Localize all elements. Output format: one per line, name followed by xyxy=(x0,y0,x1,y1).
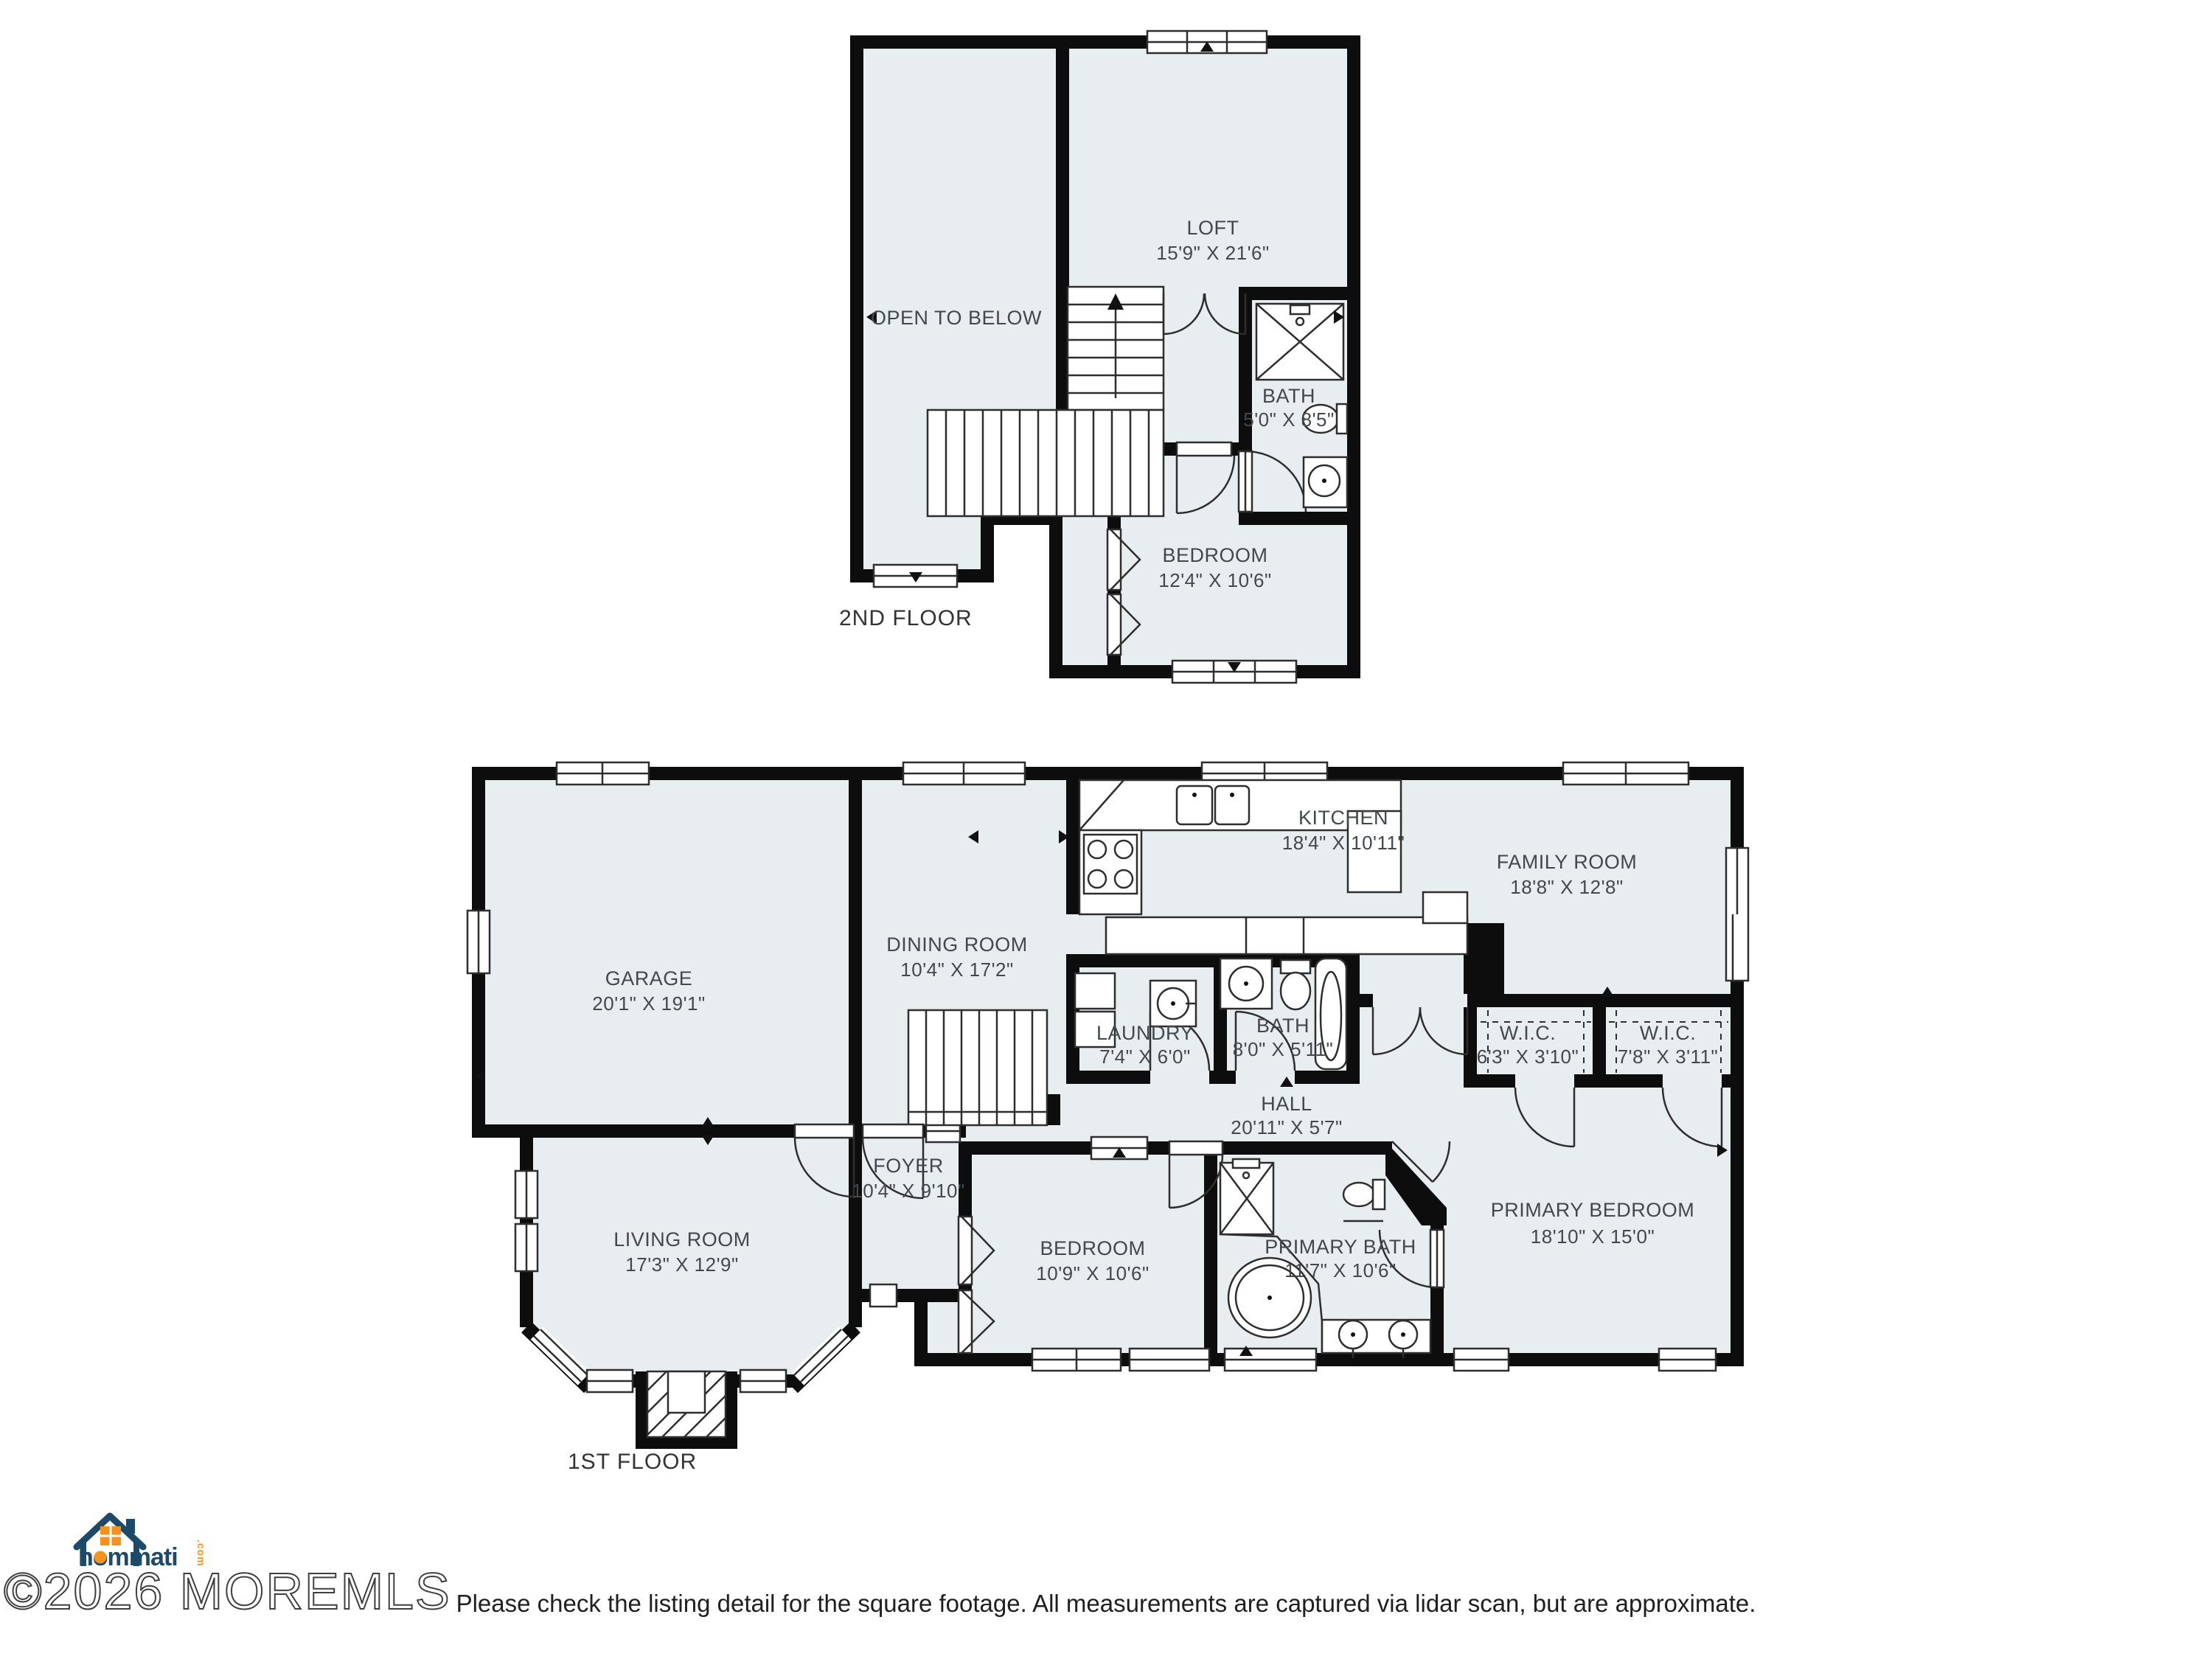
floor-plan-page: OPEN TO BELOW LOFT 15'9" X 21'6" BATH 5'… xyxy=(0,0,2212,1659)
logo-chimney-icon xyxy=(126,1519,135,1534)
room-label-hall: HALL xyxy=(1261,1093,1312,1115)
second-floor-label: 2ND FLOOR xyxy=(839,606,973,630)
room-label-kitchen: KITCHEN xyxy=(1298,807,1388,829)
room-label-primary-bedroom: PRIMARY BEDROOM xyxy=(1491,1199,1695,1221)
first-floor-plan: GARAGE 20'1" X 19'1" DINING ROOM 10'4" X… xyxy=(467,762,1748,1474)
room-dims-laundry: 7'4" X 6'0" xyxy=(1099,1046,1191,1068)
room-dims-family: 18'8" X 12'8" xyxy=(1510,876,1623,898)
garage-window-top xyxy=(557,762,649,785)
bath1-toilet-tank xyxy=(1281,960,1310,973)
room-label-foyer: FOYER xyxy=(873,1155,944,1177)
bath1-toilet xyxy=(1281,973,1310,1009)
room-dims-primary-bath: 11'7" X 10'6" xyxy=(1284,1259,1397,1281)
room-dims-hall: 20'11" X 5'7" xyxy=(1231,1116,1343,1138)
primary-bedroom-window-1 xyxy=(1454,1349,1509,1371)
sink-icon xyxy=(1304,457,1347,507)
room-dims-living: 17'3" X 12'9" xyxy=(625,1253,738,1276)
room-dims-bath2: 5'0" X 8'5" xyxy=(1243,408,1335,431)
second-floor-plan: OPEN TO BELOW LOFT 15'9" X 21'6" BATH 5'… xyxy=(839,31,1360,683)
room-label-open-to-below: OPEN TO BELOW xyxy=(871,307,1042,329)
bedroom1-window-2 xyxy=(1130,1349,1209,1371)
room-dims-wic-right: 7'8" X 3'11" xyxy=(1618,1046,1719,1068)
room-label-bath1: BATH xyxy=(1256,1015,1310,1037)
shower xyxy=(1256,304,1343,380)
room-label-bedroom1: BEDROOM xyxy=(1040,1237,1145,1259)
room-label-laundry: LAUNDRY xyxy=(1096,1022,1194,1044)
living-window-left-1 xyxy=(515,1171,538,1218)
primary-bedroom-window-2 xyxy=(1659,1349,1716,1371)
garage-window-left xyxy=(467,911,490,973)
firebox xyxy=(668,1371,705,1413)
room-label-wic-right: W.I.C. xyxy=(1640,1022,1697,1044)
kitchen-sink xyxy=(1177,786,1212,824)
room-dims-primary-bedroom: 18'10" X 15'0" xyxy=(1531,1225,1655,1248)
room-dims-dining: 10'4" X 17'2" xyxy=(900,959,1013,981)
bedroom1-window-1 xyxy=(1032,1349,1121,1371)
room-label-dining: DINING ROOM xyxy=(886,933,1028,956)
room-label-wic-left: W.I.C. xyxy=(1500,1022,1557,1044)
kitchen-counter-return xyxy=(1423,892,1467,923)
room-label-primary-bath: PRIMARY BATH xyxy=(1265,1236,1416,1258)
room-label-garage: GARAGE xyxy=(605,967,693,990)
room-dims-bedroom1: 10'9" X 10'6" xyxy=(1036,1262,1149,1284)
room-dims-foyer: 10'4" X 9'10" xyxy=(852,1180,964,1202)
foyer-niche xyxy=(870,1284,897,1307)
staircase-1f xyxy=(908,1010,1047,1125)
family-window-top xyxy=(1563,762,1688,785)
room-label-family: FAMILY ROOM xyxy=(1497,851,1638,873)
floor-plan-canvas: OPEN TO BELOW LOFT 15'9" X 21'6" BATH 5'… xyxy=(0,0,2212,1659)
kitchen-island xyxy=(1106,917,1467,954)
primary-bath-window xyxy=(1225,1349,1316,1371)
room-label-loft: LOFT xyxy=(1186,217,1239,239)
shower-head-icon xyxy=(1290,305,1310,314)
first-floor-label: 1ST FLOOR xyxy=(568,1450,697,1474)
room-dims-wic-left: 6'3" X 3'10" xyxy=(1477,1046,1579,1068)
room-label-bath2: BATH xyxy=(1262,385,1315,407)
room-dims-bedroom2: 12'4" X 10'6" xyxy=(1158,569,1271,591)
fireplace xyxy=(636,1371,737,1449)
washer-icon xyxy=(1075,973,1115,1009)
primary-shower-head xyxy=(1233,1159,1259,1168)
disclaimer-text: Please check the listing detail for the … xyxy=(456,1590,1756,1617)
bay-bottom-window-left xyxy=(587,1370,633,1392)
dining-window-top xyxy=(903,762,1025,785)
room-label-bedroom2: BEDROOM xyxy=(1162,544,1267,566)
room-label-living: LIVING ROOM xyxy=(613,1228,751,1251)
logo-orange-dot-icon xyxy=(94,1551,107,1564)
mls-watermark: ©2026 MOREMLS xyxy=(4,1562,451,1620)
bay-bottom-window-right xyxy=(740,1370,786,1392)
room-dims-bath1: 8'0" X 5'11" xyxy=(1233,1038,1334,1060)
room-dims-kitchen: 18'4" X 10'11" xyxy=(1282,832,1405,854)
room-dims-garage: 20'1" X 19'1" xyxy=(592,992,705,1015)
living-window-left-2 xyxy=(515,1224,538,1271)
primary-toilet xyxy=(1343,1183,1374,1206)
room-dims-loft: 15'9" X 21'6" xyxy=(1156,242,1269,264)
family-sliding-door xyxy=(1726,848,1748,981)
